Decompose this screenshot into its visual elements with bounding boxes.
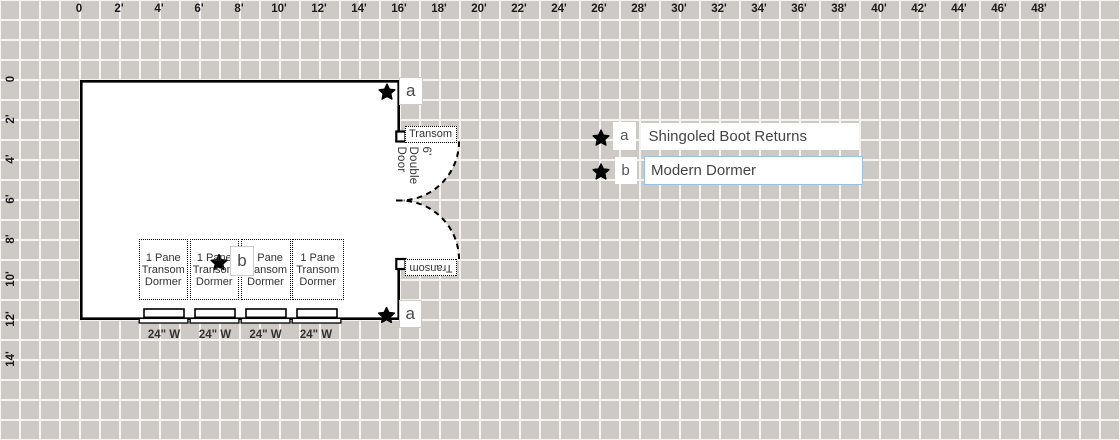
svg-text:30': 30' (671, 3, 687, 15)
svg-text:26': 26' (591, 3, 607, 15)
svg-text:40': 40' (871, 3, 887, 15)
svg-text:16': 16' (391, 3, 407, 15)
svg-text:24" W: 24" W (199, 329, 231, 341)
svg-text:20': 20' (471, 3, 487, 15)
svg-text:46': 46' (991, 3, 1007, 15)
svg-text:Double: Double (407, 147, 419, 185)
svg-text:34': 34' (751, 3, 767, 15)
svg-text:38': 38' (831, 3, 847, 15)
svg-text:8': 8' (5, 234, 17, 243)
svg-text:0: 0 (76, 3, 82, 15)
svg-text:44': 44' (951, 3, 967, 15)
svg-text:32': 32' (711, 3, 727, 15)
svg-text:14': 14' (5, 351, 17, 367)
svg-text:36': 36' (791, 3, 807, 15)
svg-text:10': 10' (271, 3, 287, 15)
svg-text:6': 6' (5, 194, 17, 203)
svg-text:0: 0 (5, 76, 17, 82)
svg-text:4': 4' (5, 154, 17, 163)
svg-text:10': 10' (5, 271, 17, 287)
svg-text:12': 12' (5, 311, 17, 327)
svg-text:6': 6' (420, 147, 432, 156)
svg-text:6': 6' (194, 3, 203, 15)
svg-text:48': 48' (1031, 3, 1047, 15)
svg-text:8': 8' (234, 3, 243, 15)
svg-text:42': 42' (911, 3, 927, 15)
svg-text:24" W: 24" W (300, 329, 332, 341)
svg-text:14': 14' (351, 3, 367, 15)
svg-text:12': 12' (311, 3, 327, 15)
svg-text:18': 18' (431, 3, 447, 15)
svg-text:28': 28' (631, 3, 647, 15)
svg-text:24" W: 24" W (148, 329, 180, 341)
svg-text:2': 2' (5, 114, 17, 123)
svg-text:22': 22' (511, 3, 527, 15)
svg-text:24" W: 24" W (249, 329, 281, 341)
svg-text:2': 2' (114, 3, 123, 15)
svg-text:Door: Door (395, 147, 407, 173)
svg-text:24': 24' (551, 3, 567, 15)
svg-text:4': 4' (154, 3, 163, 15)
